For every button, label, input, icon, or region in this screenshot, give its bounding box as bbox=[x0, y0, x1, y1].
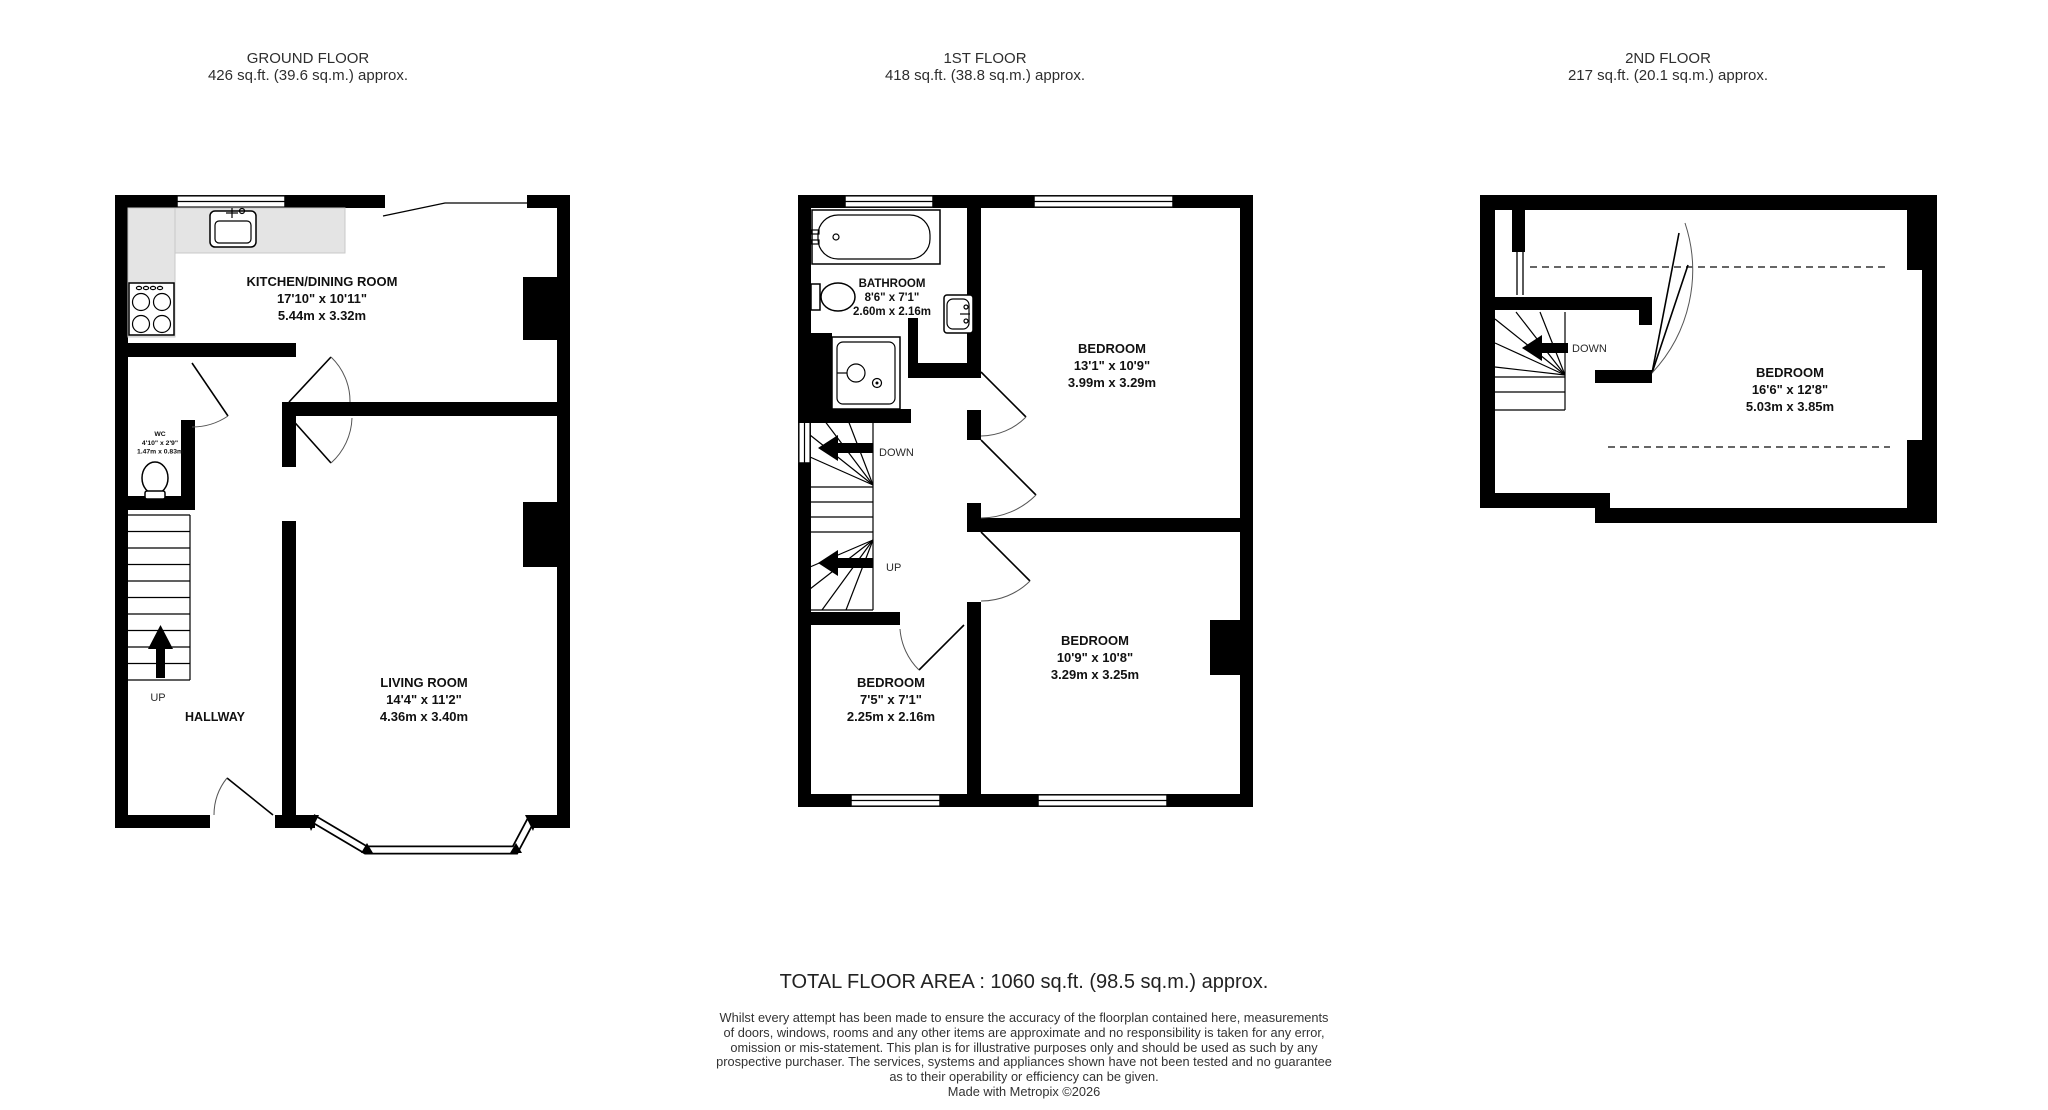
bedroom1-label: BEDROOM 13'1" x 10'9" 3.99m x 3.29m bbox=[1068, 341, 1156, 390]
bedroom4-name: BEDROOM bbox=[1756, 365, 1824, 380]
bedroom2-metric: 3.29m x 3.25m bbox=[1051, 667, 1139, 682]
toilet-icon bbox=[142, 462, 168, 499]
shower-icon bbox=[832, 337, 900, 409]
second-interior-walls bbox=[1495, 210, 1652, 383]
second-floor-plan: BEDROOM 16'6" x 12'8" 5.03m x 3.85m DOWN bbox=[1480, 195, 1937, 525]
bedroom3-label: BEDROOM 7'5" x 7'1" 2.25m x 2.16m bbox=[847, 675, 935, 724]
floorplan-page: GROUND FLOOR 426 sq.ft. (39.6 sq.m.) app… bbox=[0, 0, 2048, 1110]
living-imperial: 14'4" x 11'2" bbox=[386, 692, 462, 707]
kitchen-imperial: 17'10" x 10'11" bbox=[277, 291, 367, 306]
bathroom-imperial: 8'6" x 7'1" bbox=[865, 292, 920, 304]
bedroom4-imperial: 16'6" x 12'8" bbox=[1752, 382, 1828, 397]
bedroom2-name: BEDROOM bbox=[1061, 633, 1129, 648]
ground-interior-walls bbox=[128, 343, 557, 815]
first-floor-stairs bbox=[810, 420, 873, 610]
bedroom4-door bbox=[1652, 223, 1693, 373]
up-arrow-icon bbox=[148, 625, 173, 678]
wc-door bbox=[192, 363, 228, 427]
second-outer-walls bbox=[1480, 195, 1937, 523]
bedroom1-name: BEDROOM bbox=[1078, 341, 1146, 356]
first-up-label: UP bbox=[886, 562, 901, 574]
ground-floor-area: 426 sq.ft. (39.6 sq.m.) approx. bbox=[108, 68, 508, 85]
ground-up-label: UP bbox=[150, 692, 165, 704]
disclaimer-line-2: of doors, windows, rooms and any other i… bbox=[0, 1026, 2048, 1041]
kitchen-door bbox=[289, 357, 350, 402]
living-name: LIVING ROOM bbox=[380, 675, 467, 690]
first-floor-area: 418 sq.ft. (38.8 sq.m.) approx. bbox=[785, 68, 1185, 85]
ground-outer-walls bbox=[115, 195, 570, 828]
bedroom4-metric: 5.03m x 3.85m bbox=[1746, 399, 1834, 414]
living-room-door bbox=[289, 416, 352, 463]
bedroom2-imperial: 10'9" x 10'8" bbox=[1057, 650, 1133, 665]
bathroom-door bbox=[981, 372, 1026, 436]
hallway-label: HALLWAY bbox=[185, 710, 246, 724]
kitchen-label: KITCHEN/DINING ROOM 17'10" x 10'11" 5.44… bbox=[247, 274, 398, 323]
kitchen-name: KITCHEN/DINING ROOM bbox=[247, 274, 398, 289]
sink-icon bbox=[210, 208, 256, 247]
sloped-ceiling-lines bbox=[1530, 267, 1890, 447]
kitchen-metric: 5.44m x 3.32m bbox=[278, 308, 366, 323]
toilet-icon bbox=[811, 283, 855, 311]
bedroom2-door bbox=[981, 532, 1030, 601]
bedroom3-imperial: 7'5" x 7'1" bbox=[860, 692, 922, 707]
disclaimer-line-1: Whilst every attempt has been made to en… bbox=[0, 1011, 2048, 1026]
disclaimer-line-3: omission or mis-statement. This plan is … bbox=[0, 1041, 2048, 1056]
bay-window bbox=[305, 815, 539, 853]
down-arrow-icon bbox=[818, 435, 873, 461]
total-floor-area: TOTAL FLOOR AREA : 1060 sq.ft. (98.5 sq.… bbox=[0, 971, 2048, 994]
second-floor-header: 2ND FLOOR 217 sq.ft. (20.1 sq.m.) approx… bbox=[1468, 51, 1868, 84]
disclaimer-line-5: as to their operability or efficiency ca… bbox=[0, 1070, 2048, 1085]
hob-icon bbox=[129, 283, 174, 335]
living-room-label: LIVING ROOM 14'4" x 11'2" 4.36m x 3.40m bbox=[380, 675, 468, 724]
ground-floor-header: GROUND FLOOR 426 sq.ft. (39.6 sq.m.) app… bbox=[108, 51, 508, 84]
front-door bbox=[214, 778, 273, 815]
up-arrow-icon bbox=[818, 550, 873, 576]
down-arrow-icon bbox=[1522, 335, 1568, 361]
chimney-breast bbox=[1210, 620, 1240, 675]
bathroom-name: BATHROOM bbox=[859, 278, 926, 290]
kitchen-window bbox=[177, 196, 285, 207]
ground-floor-title: GROUND FLOOR bbox=[108, 51, 508, 68]
bedroom1-door bbox=[981, 440, 1036, 518]
bathroom-metric: 2.60m x 2.16m bbox=[853, 306, 931, 318]
wc-imperial: 4'10" x 2'9" bbox=[142, 440, 178, 447]
bedroom1-metric: 3.99m x 3.29m bbox=[1068, 375, 1156, 390]
bedroom3-name: BEDROOM bbox=[857, 675, 925, 690]
first-down-label: DOWN bbox=[879, 447, 914, 459]
wc-metric: 1.47m x 0.83m bbox=[137, 449, 183, 456]
second-down-label: DOWN bbox=[1572, 343, 1607, 355]
bedroom4-label: BEDROOM 16'6" x 12'8" 5.03m x 3.85m bbox=[1746, 365, 1834, 414]
first-floor-plan: BATHROOM 8'6" x 7'1" 2.60m x 2.16m BEDRO… bbox=[798, 195, 1253, 807]
bedroom1-imperial: 13'1" x 10'9" bbox=[1074, 358, 1150, 373]
bedroom3-door bbox=[900, 625, 964, 670]
wc-label: WC 4'10" x 2'9" 1.47m x 0.83m bbox=[137, 431, 183, 456]
first-floor-title: 1ST FLOOR bbox=[785, 51, 1185, 68]
chimney-breast bbox=[523, 277, 557, 340]
disclaimer-line-4: prospective purchaser. The services, sys… bbox=[0, 1055, 2048, 1070]
bedroom2-label: BEDROOM 10'9" x 10'8" 3.29m x 3.25m bbox=[1051, 633, 1139, 682]
flue-lines bbox=[1517, 252, 1523, 295]
bath-icon bbox=[811, 210, 940, 264]
ground-floor-plan: KITCHEN/DINING ROOM 17'10" x 10'11" 5.44… bbox=[115, 195, 570, 857]
bathroom-label: BATHROOM 8'6" x 7'1" 2.60m x 2.16m bbox=[853, 278, 931, 318]
first-floor-header: 1ST FLOOR 418 sq.ft. (38.8 sq.m.) approx… bbox=[785, 51, 1185, 84]
basin-icon bbox=[944, 295, 973, 333]
disclaimer: Whilst every attempt has been made to en… bbox=[0, 1011, 2048, 1100]
second-floor-area: 217 sq.ft. (20.1 sq.m.) approx. bbox=[1468, 68, 1868, 85]
second-floor-stairs bbox=[1495, 312, 1568, 410]
chimney-breast bbox=[523, 502, 557, 567]
wc-name: WC bbox=[154, 431, 165, 438]
ground-stairs bbox=[128, 515, 190, 680]
second-floor-title: 2ND FLOOR bbox=[1468, 51, 1868, 68]
living-metric: 4.36m x 3.40m bbox=[380, 709, 468, 724]
metropix-credit: Made with Metropix ©2026 bbox=[0, 1085, 2048, 1100]
bedroom3-metric: 2.25m x 2.16m bbox=[847, 709, 935, 724]
